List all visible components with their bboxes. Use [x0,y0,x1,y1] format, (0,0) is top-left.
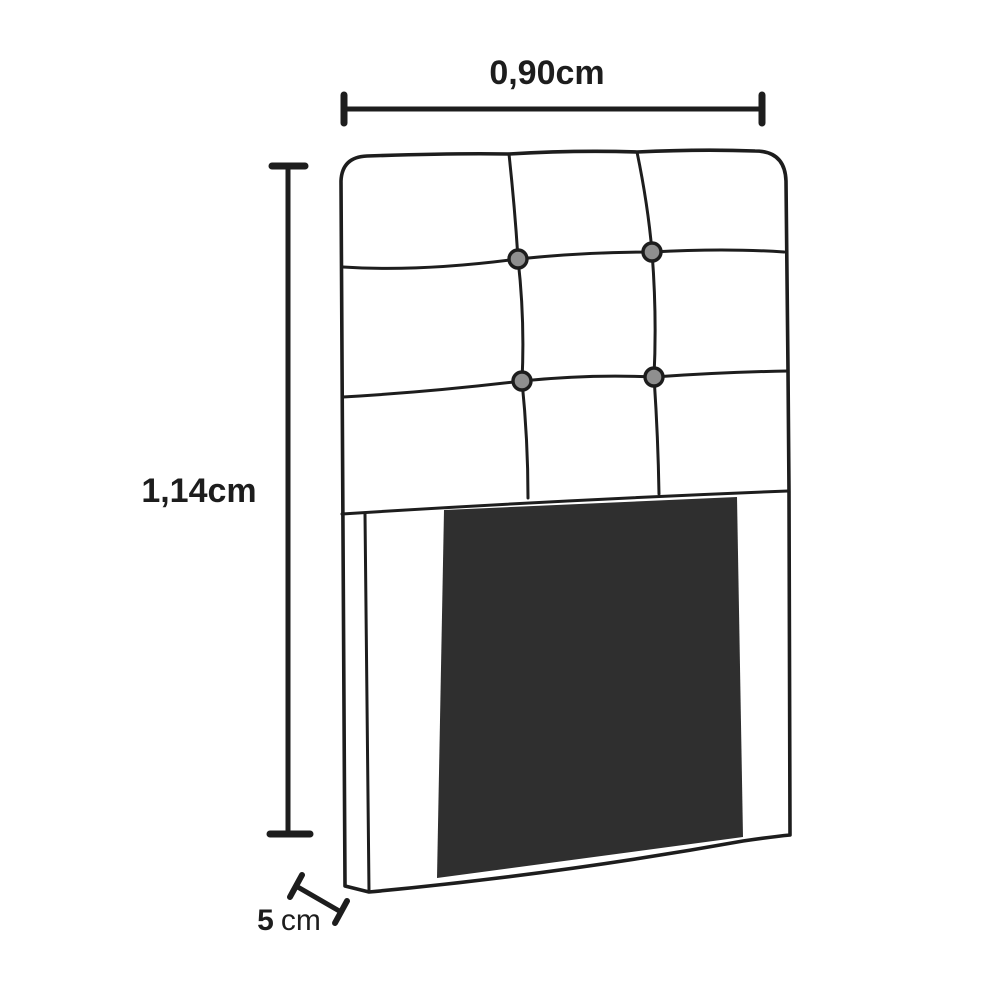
headboard-dimension-diagram: 0,90cm 1,14cm 5cm [0,0,1000,1000]
headboard-drawing [341,150,790,892]
width-dimension-label: 0,90cm [489,54,604,92]
width-dimension: 0,90cm [344,54,762,123]
drawing-root: 0,90cm 1,14cm 5cm [141,54,790,937]
depth-unit: cm [281,904,321,937]
base-panel [437,497,743,878]
depth-value: 5 [257,904,274,937]
tuft-button-top-right [643,243,661,261]
tuft-button-bottom-right [645,368,663,386]
height-dimension: 1,14cm [141,166,310,834]
depth-dimension-label: 5cm [257,904,321,937]
diagram-canvas: 0,90cm 1,14cm 5cm [0,0,1000,1000]
height-dimension-label: 1,14cm [141,472,256,510]
depth-dimension: 5cm [257,875,347,937]
tuft-button-top-left [509,250,527,268]
tuft-button-bottom-left [513,372,531,390]
